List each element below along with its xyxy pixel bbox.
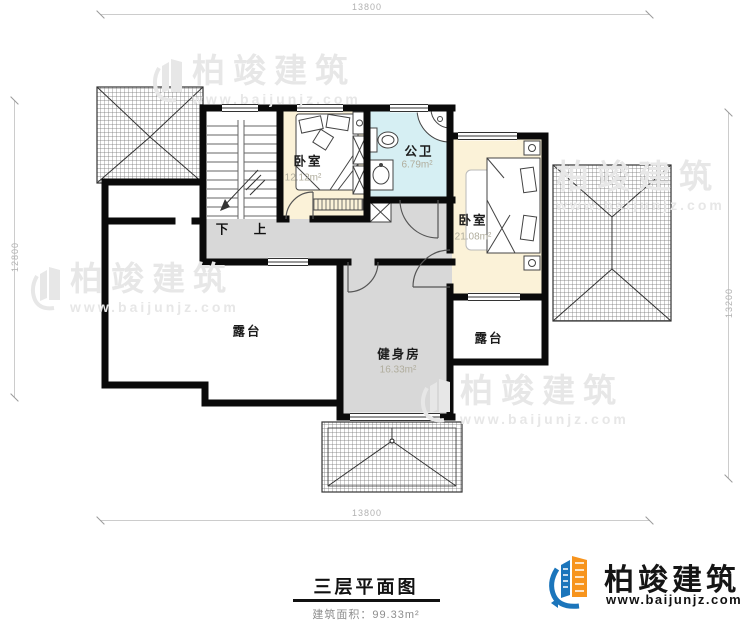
- brand-logo-icon: [543, 551, 599, 615]
- built-area-label: 建筑面积：99.33m²: [312, 606, 419, 622]
- brand-url: www.baijunjz.com: [606, 592, 742, 607]
- room-label-terrace-left: 露台: [232, 321, 261, 340]
- room-area-bath: 6.79m²: [401, 160, 432, 171]
- floor-plan-page: 柏竣建筑 www.baijunjz.com 柏竣建筑 www.baijunjz.…: [0, 0, 750, 623]
- stairs-up-label: 上: [254, 219, 267, 238]
- room-area-bedroom-small: 12.12m²: [285, 173, 322, 184]
- stairs: [207, 118, 277, 219]
- room-area-bedroom-master: 21.08m²: [455, 232, 492, 243]
- stairs-down-label: 下: [216, 219, 229, 238]
- room-label-bedroom-master: 卧室: [458, 210, 487, 229]
- room-label-bath: 公卫: [404, 141, 433, 160]
- room-label-bedroom-small: 卧室: [293, 151, 322, 170]
- room-label-terrace-right: 露台: [474, 328, 503, 347]
- plan-title: 三层平面图: [314, 573, 419, 599]
- shaft-box: [370, 202, 391, 222]
- title-underline: [293, 599, 440, 602]
- room-area-gym: 16.33m²: [380, 365, 417, 376]
- room-label-gym: 健身房: [377, 344, 421, 363]
- floor-plan-drawing: [0, 0, 750, 623]
